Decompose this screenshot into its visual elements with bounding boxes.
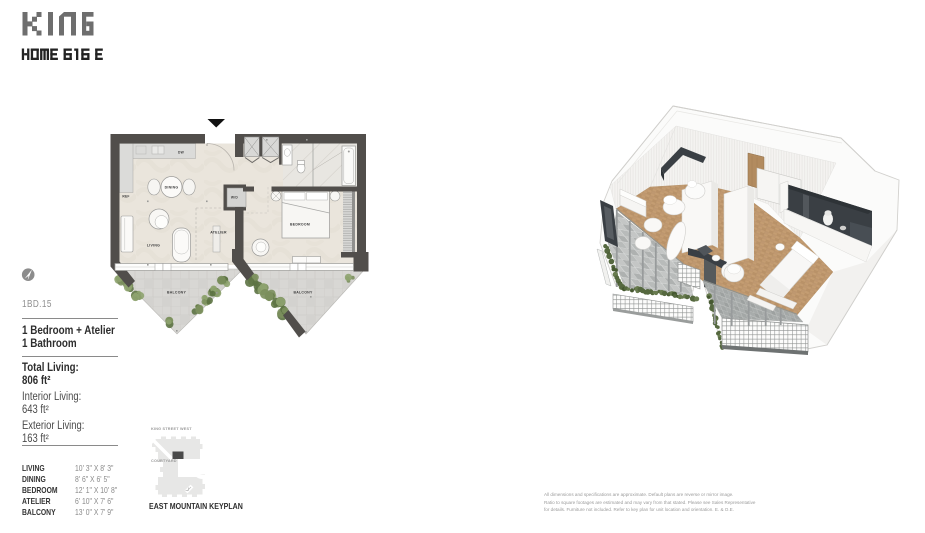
svg-text:BEDROOM: BEDROOM bbox=[290, 223, 310, 227]
svg-text:BALCONY: BALCONY bbox=[293, 291, 312, 295]
svg-text:ATELIER: ATELIER bbox=[210, 231, 227, 235]
svg-text:REF: REF bbox=[122, 195, 129, 199]
svg-text:DINING: DINING bbox=[165, 186, 179, 190]
svg-text:W/D: W/D bbox=[231, 196, 239, 200]
svg-text:BALCONY: BALCONY bbox=[167, 291, 186, 295]
svg-text:LIVING: LIVING bbox=[147, 244, 160, 248]
svg-text:DW: DW bbox=[178, 151, 185, 155]
